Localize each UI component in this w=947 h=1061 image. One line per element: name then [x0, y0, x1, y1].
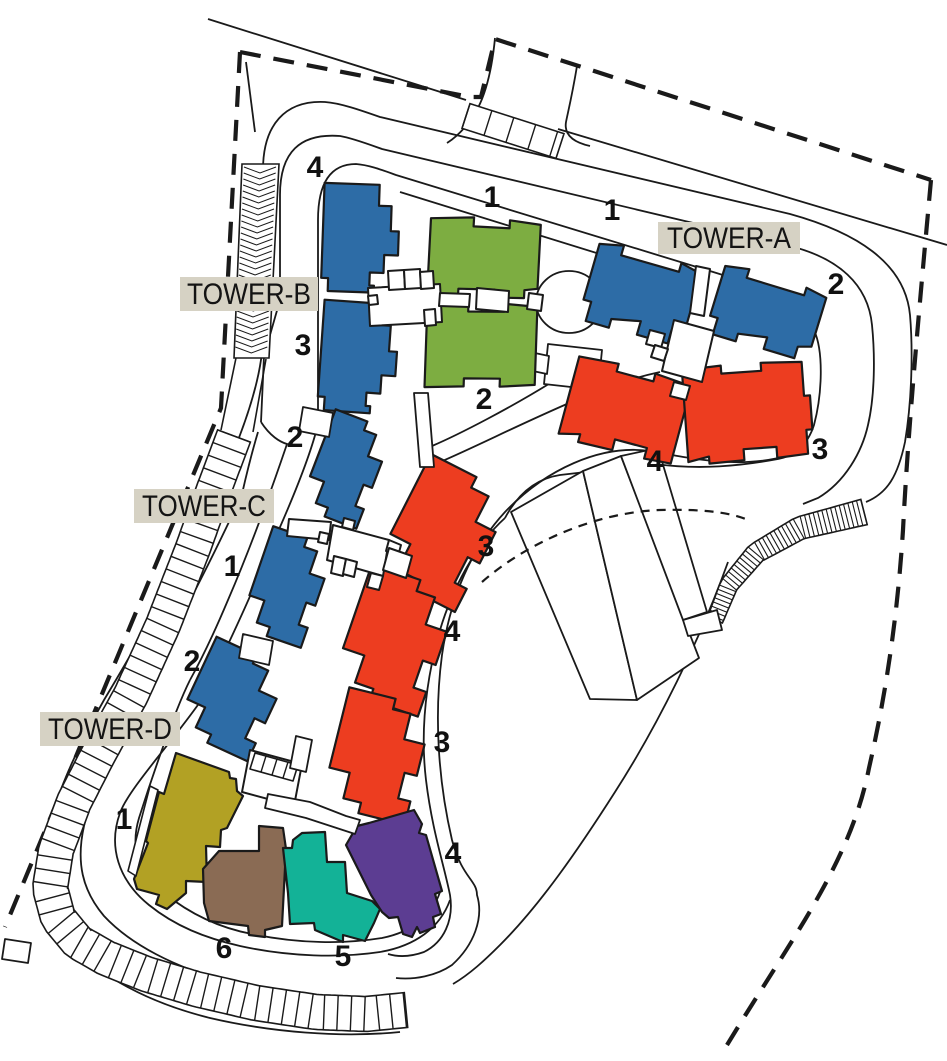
svg-text:4: 4 — [647, 445, 664, 478]
svg-text:2: 2 — [287, 421, 304, 454]
svg-text:2: 2 — [184, 645, 201, 678]
svg-text:2: 2 — [476, 383, 493, 416]
svg-text:3: 3 — [478, 530, 495, 563]
svg-text:4: 4 — [445, 837, 462, 870]
svg-text:1: 1 — [224, 550, 241, 583]
svg-text:4: 4 — [444, 615, 461, 648]
svg-text:TOWER-D: TOWER-D — [48, 713, 172, 746]
svg-text:TOWER-C: TOWER-C — [142, 490, 266, 523]
svg-text:1: 1 — [484, 181, 501, 214]
svg-text:TOWER-A: TOWER-A — [667, 222, 791, 255]
svg-text:1: 1 — [604, 194, 621, 227]
svg-text:3: 3 — [812, 433, 829, 466]
svg-text:2: 2 — [828, 268, 845, 301]
svg-text:TOWER-B: TOWER-B — [187, 278, 311, 311]
svg-text:3: 3 — [434, 726, 451, 759]
svg-text:3: 3 — [295, 329, 312, 362]
svg-text:4: 4 — [307, 151, 324, 184]
svg-text:5: 5 — [335, 940, 352, 973]
svg-text:6: 6 — [216, 932, 233, 965]
svg-text:1: 1 — [116, 803, 133, 836]
